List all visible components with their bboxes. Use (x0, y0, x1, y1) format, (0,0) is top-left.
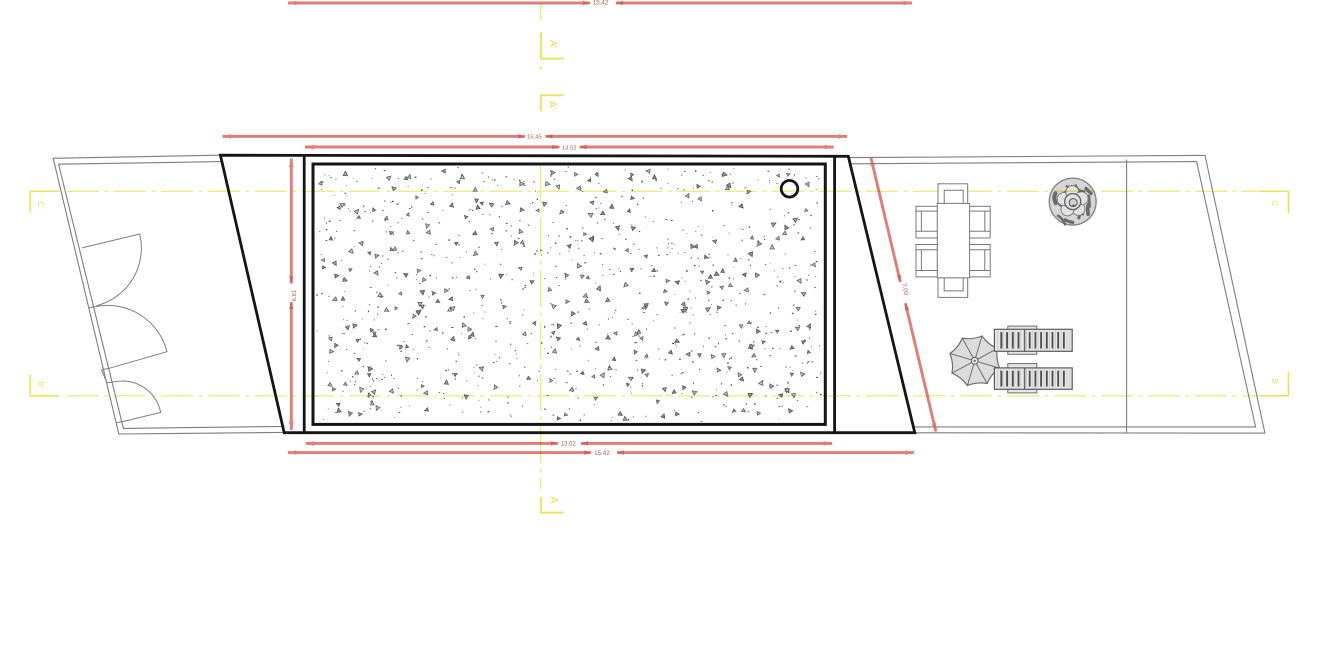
svg-text:15.45: 15.45 (527, 134, 542, 140)
svg-text:15.42: 15.42 (593, 0, 609, 7)
svg-text:15.42: 15.42 (594, 450, 610, 457)
svg-text:13.02: 13.02 (562, 145, 577, 151)
svg-text:A: A (548, 497, 559, 504)
svg-text:C: C (1270, 200, 1279, 206)
svg-text:B: B (1270, 379, 1279, 384)
svg-text:6.81: 6.81 (292, 290, 298, 301)
svg-text:B’: B’ (36, 381, 45, 388)
svg-text:C’: C’ (36, 201, 45, 209)
svg-text:A’: A’ (547, 40, 558, 48)
svg-text:A’: A’ (547, 101, 558, 109)
svg-text:13.02: 13.02 (561, 442, 577, 448)
